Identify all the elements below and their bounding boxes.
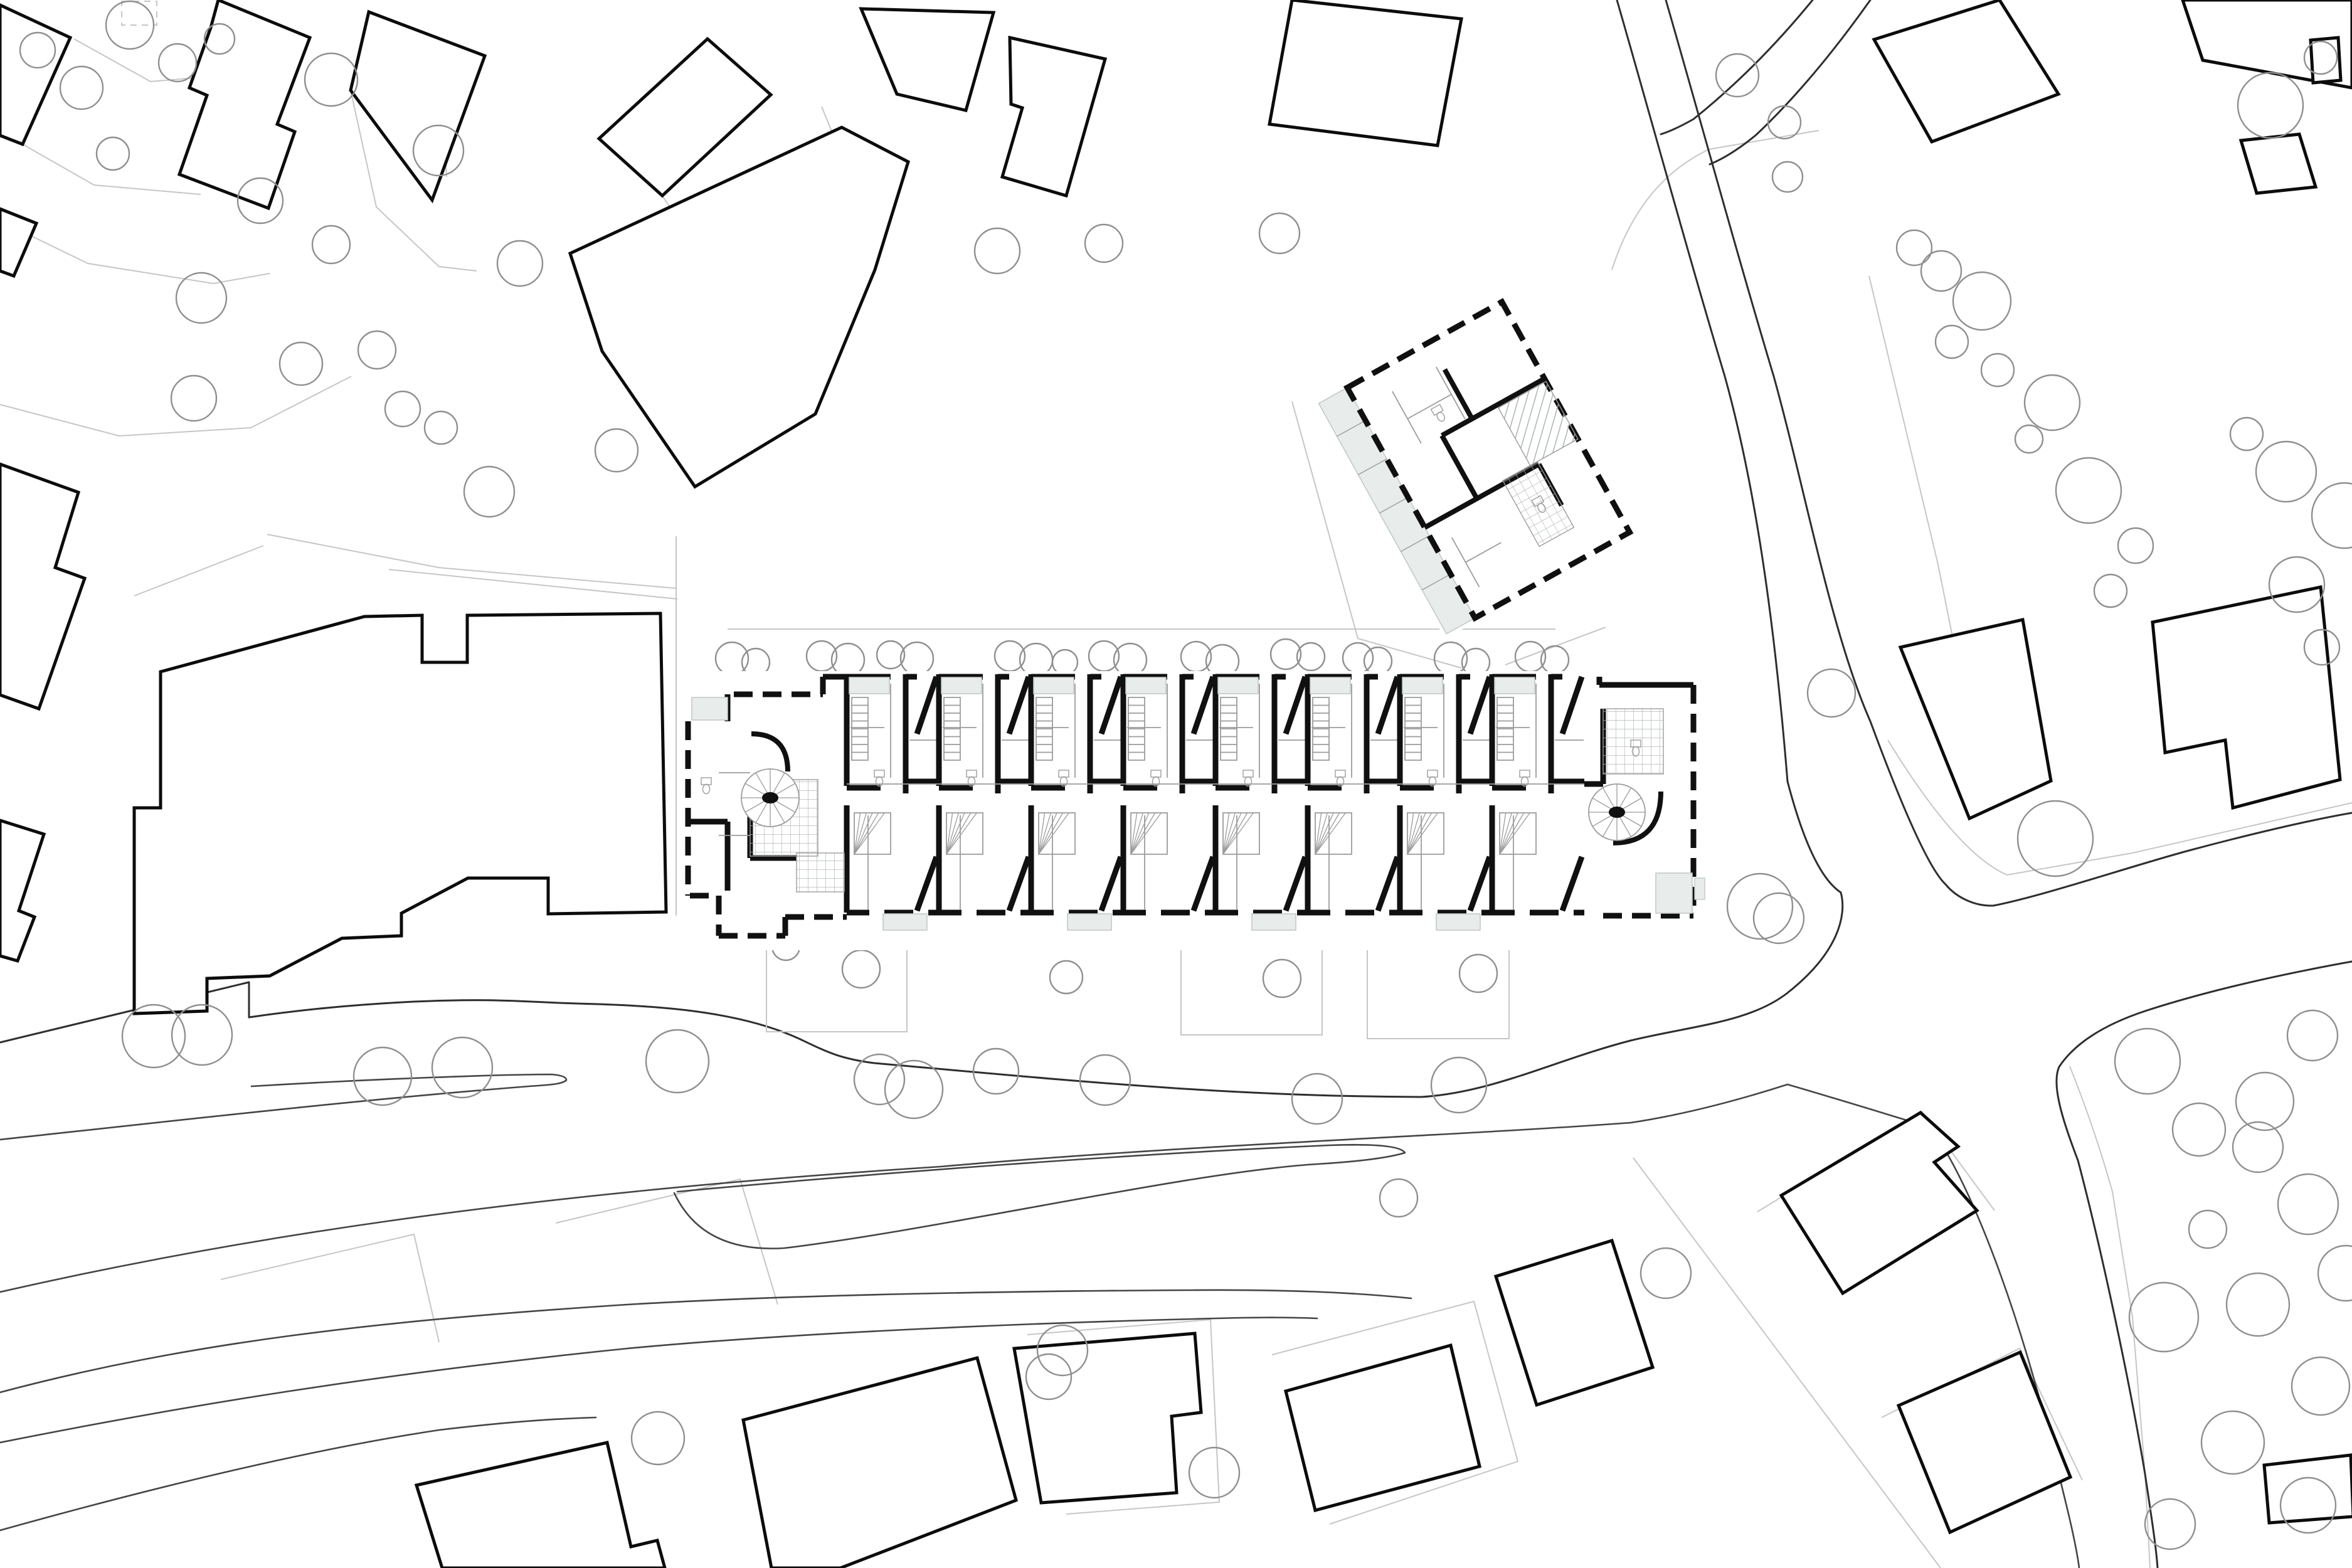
- tree: [1189, 1448, 1239, 1498]
- tree: [1343, 643, 1373, 673]
- terrace: [849, 677, 889, 694]
- tree: [2056, 458, 2121, 523]
- dashed-shed-outline: [122, 1, 157, 25]
- parcel-line: [2070, 1066, 2150, 1568]
- parcel-line: [0, 221, 270, 283]
- context-building: [0, 209, 36, 276]
- annex-building: [1313, 297, 1634, 639]
- tree: [632, 1412, 684, 1465]
- entry-step: [1695, 878, 1705, 899]
- tree: [1953, 272, 2011, 330]
- tree: [425, 411, 457, 444]
- tree: [2025, 375, 2080, 430]
- tree: [595, 429, 638, 472]
- tree: [885, 1061, 943, 1118]
- terrace: [941, 677, 982, 694]
- tree: [1716, 54, 1759, 97]
- tree: [901, 642, 933, 675]
- context-building: [1900, 620, 2051, 818]
- context-building: [1286, 1345, 1480, 1510]
- terrace: [1310, 677, 1350, 694]
- tree: [2278, 1174, 2338, 1234]
- tree: [1292, 1074, 1342, 1124]
- context-building: [351, 12, 485, 200]
- tree: [1768, 106, 1801, 139]
- terrace: [1067, 914, 1111, 930]
- context-building: [2264, 1455, 2352, 1523]
- context-building: [1874, 0, 2058, 142]
- tree: [2018, 801, 2093, 876]
- terrace: [1252, 914, 1296, 930]
- tree: [464, 467, 514, 517]
- context-building: [1269, 0, 1461, 146]
- context-building: [0, 820, 44, 961]
- tree: [171, 376, 216, 421]
- parcel-line: [556, 1179, 778, 1305]
- tree: [1808, 669, 1855, 717]
- context-building: [416, 1443, 665, 1568]
- tree: [60, 66, 103, 109]
- tree: [1754, 893, 1804, 943]
- tree: [1080, 1055, 1130, 1105]
- contour-line: [0, 1074, 566, 1140]
- tree: [358, 331, 396, 369]
- terrace: [883, 914, 927, 930]
- parcel-line: [1612, 130, 1819, 270]
- tree: [1085, 225, 1123, 262]
- tree: [1380, 1179, 1417, 1217]
- context-building: [2153, 587, 2340, 808]
- terrace: [1436, 914, 1480, 930]
- context-building: [2241, 134, 2316, 193]
- terrace: [1126, 677, 1166, 694]
- terrace: [1402, 677, 1443, 694]
- tree: [2318, 1246, 2352, 1301]
- tree: [2287, 1010, 2338, 1061]
- tree: [2115, 1029, 2180, 1094]
- tree: [854, 1054, 904, 1104]
- tiled-floor: [1603, 709, 1663, 774]
- tree: [2292, 1357, 2349, 1415]
- tree: [2118, 528, 2153, 563]
- context-building: [1899, 1352, 2070, 1532]
- context-building: [179, 0, 310, 208]
- tree: [176, 273, 226, 323]
- tree: [2230, 418, 2263, 450]
- tree: [2094, 575, 2127, 607]
- tree: [1271, 639, 1301, 669]
- tree: [2201, 1411, 2264, 1474]
- context-building: [134, 613, 666, 1014]
- tree: [646, 1030, 709, 1093]
- site-plan-page: [0, 0, 2352, 1568]
- context-building: [743, 1358, 1016, 1568]
- tree: [1431, 1057, 1486, 1113]
- tree: [1459, 955, 1497, 992]
- terrace: [1495, 677, 1535, 694]
- tiled-floor: [797, 853, 844, 892]
- tree: [305, 53, 358, 106]
- tree: [1050, 961, 1083, 993]
- tree: [877, 641, 904, 669]
- tree: [1897, 230, 1932, 265]
- tree: [354, 1047, 411, 1105]
- site-plan: [0, 0, 2352, 1568]
- context-building: [0, 464, 85, 709]
- tree: [172, 1005, 232, 1065]
- tree: [432, 1037, 492, 1098]
- tree: [1259, 213, 1300, 253]
- tree: [280, 342, 322, 385]
- terrace: [1218, 677, 1258, 694]
- tree: [2015, 425, 2043, 453]
- tree: [97, 137, 129, 170]
- tree: [1364, 647, 1392, 675]
- parcel-line: [134, 546, 263, 596]
- tree: [1263, 960, 1301, 997]
- tree: [2189, 1210, 2227, 1248]
- tree: [1921, 251, 1961, 291]
- tree: [973, 1049, 1019, 1094]
- tree: [2236, 1073, 2294, 1130]
- tree: [385, 391, 420, 426]
- context-building: [1496, 1241, 1653, 1405]
- tree: [312, 226, 350, 263]
- tree: [2173, 1103, 2225, 1156]
- tree: [2227, 1273, 2289, 1336]
- row-house-building: [687, 671, 1707, 950]
- spiral-newel: [1609, 807, 1625, 818]
- context-building: [1014, 1333, 1201, 1503]
- tree: [1981, 354, 2014, 386]
- context-building: [0, 5, 70, 144]
- tree: [1772, 162, 1803, 192]
- tree: [2238, 73, 2303, 138]
- tree: [1641, 1248, 1691, 1298]
- tree: [716, 642, 748, 675]
- context-building: [570, 127, 908, 487]
- contour-line: [674, 1145, 1405, 1248]
- tree: [2129, 1283, 2198, 1352]
- parcel-line: [221, 1234, 439, 1342]
- tree: [842, 950, 880, 988]
- tree: [1936, 326, 1968, 358]
- terrace: [692, 697, 728, 720]
- annex-group: [1313, 297, 1634, 639]
- tree: [975, 228, 1020, 273]
- terrace: [1656, 873, 1692, 913]
- tree: [2256, 442, 2316, 502]
- context-building: [1781, 1113, 1977, 1293]
- parcel-line: [267, 534, 676, 588]
- context-building: [1002, 38, 1105, 196]
- tree: [1727, 874, 1793, 939]
- spiral-newel: [762, 792, 778, 803]
- tree: [159, 44, 196, 82]
- tree: [2312, 483, 2352, 548]
- road-edge: [1710, 0, 1870, 164]
- tree: [497, 241, 543, 286]
- road-edge: [1661, 0, 1813, 134]
- context-building: [861, 9, 993, 110]
- terrace: [1034, 677, 1074, 694]
